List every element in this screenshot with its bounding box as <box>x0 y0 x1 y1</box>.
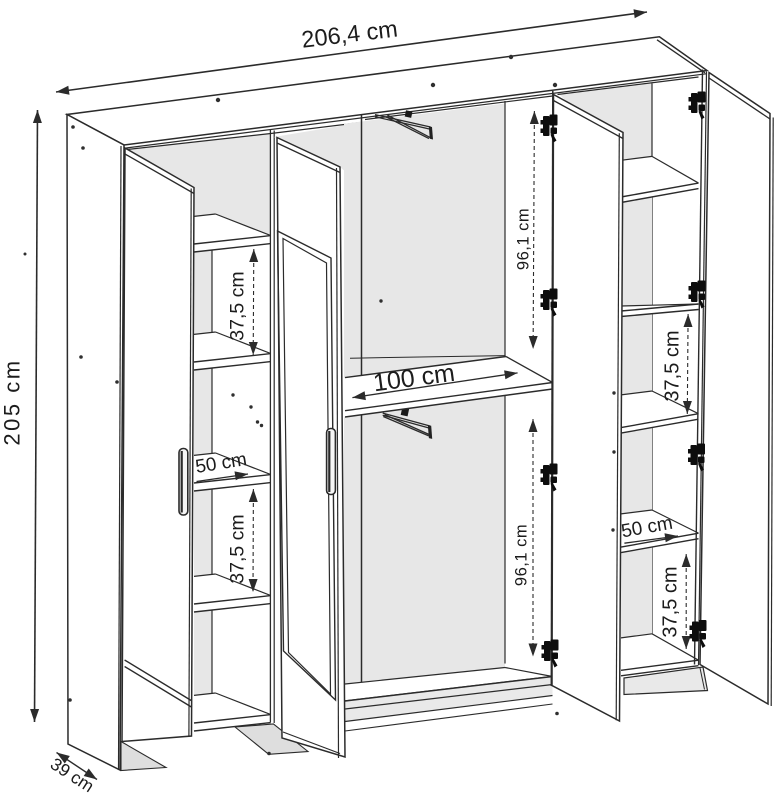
svg-text:37,5 cm: 37,5 cm <box>227 514 249 583</box>
svg-text:37,5 cm: 37,5 cm <box>227 271 249 340</box>
svg-text:96,1 cm: 96,1 cm <box>515 208 533 270</box>
svg-text:37,5 cm: 37,5 cm <box>660 566 682 637</box>
svg-text:37,5 cm: 37,5 cm <box>662 330 684 401</box>
svg-text:96,1 cm: 96,1 cm <box>513 524 531 586</box>
svg-text:205 cm: 205 cm <box>0 358 25 445</box>
